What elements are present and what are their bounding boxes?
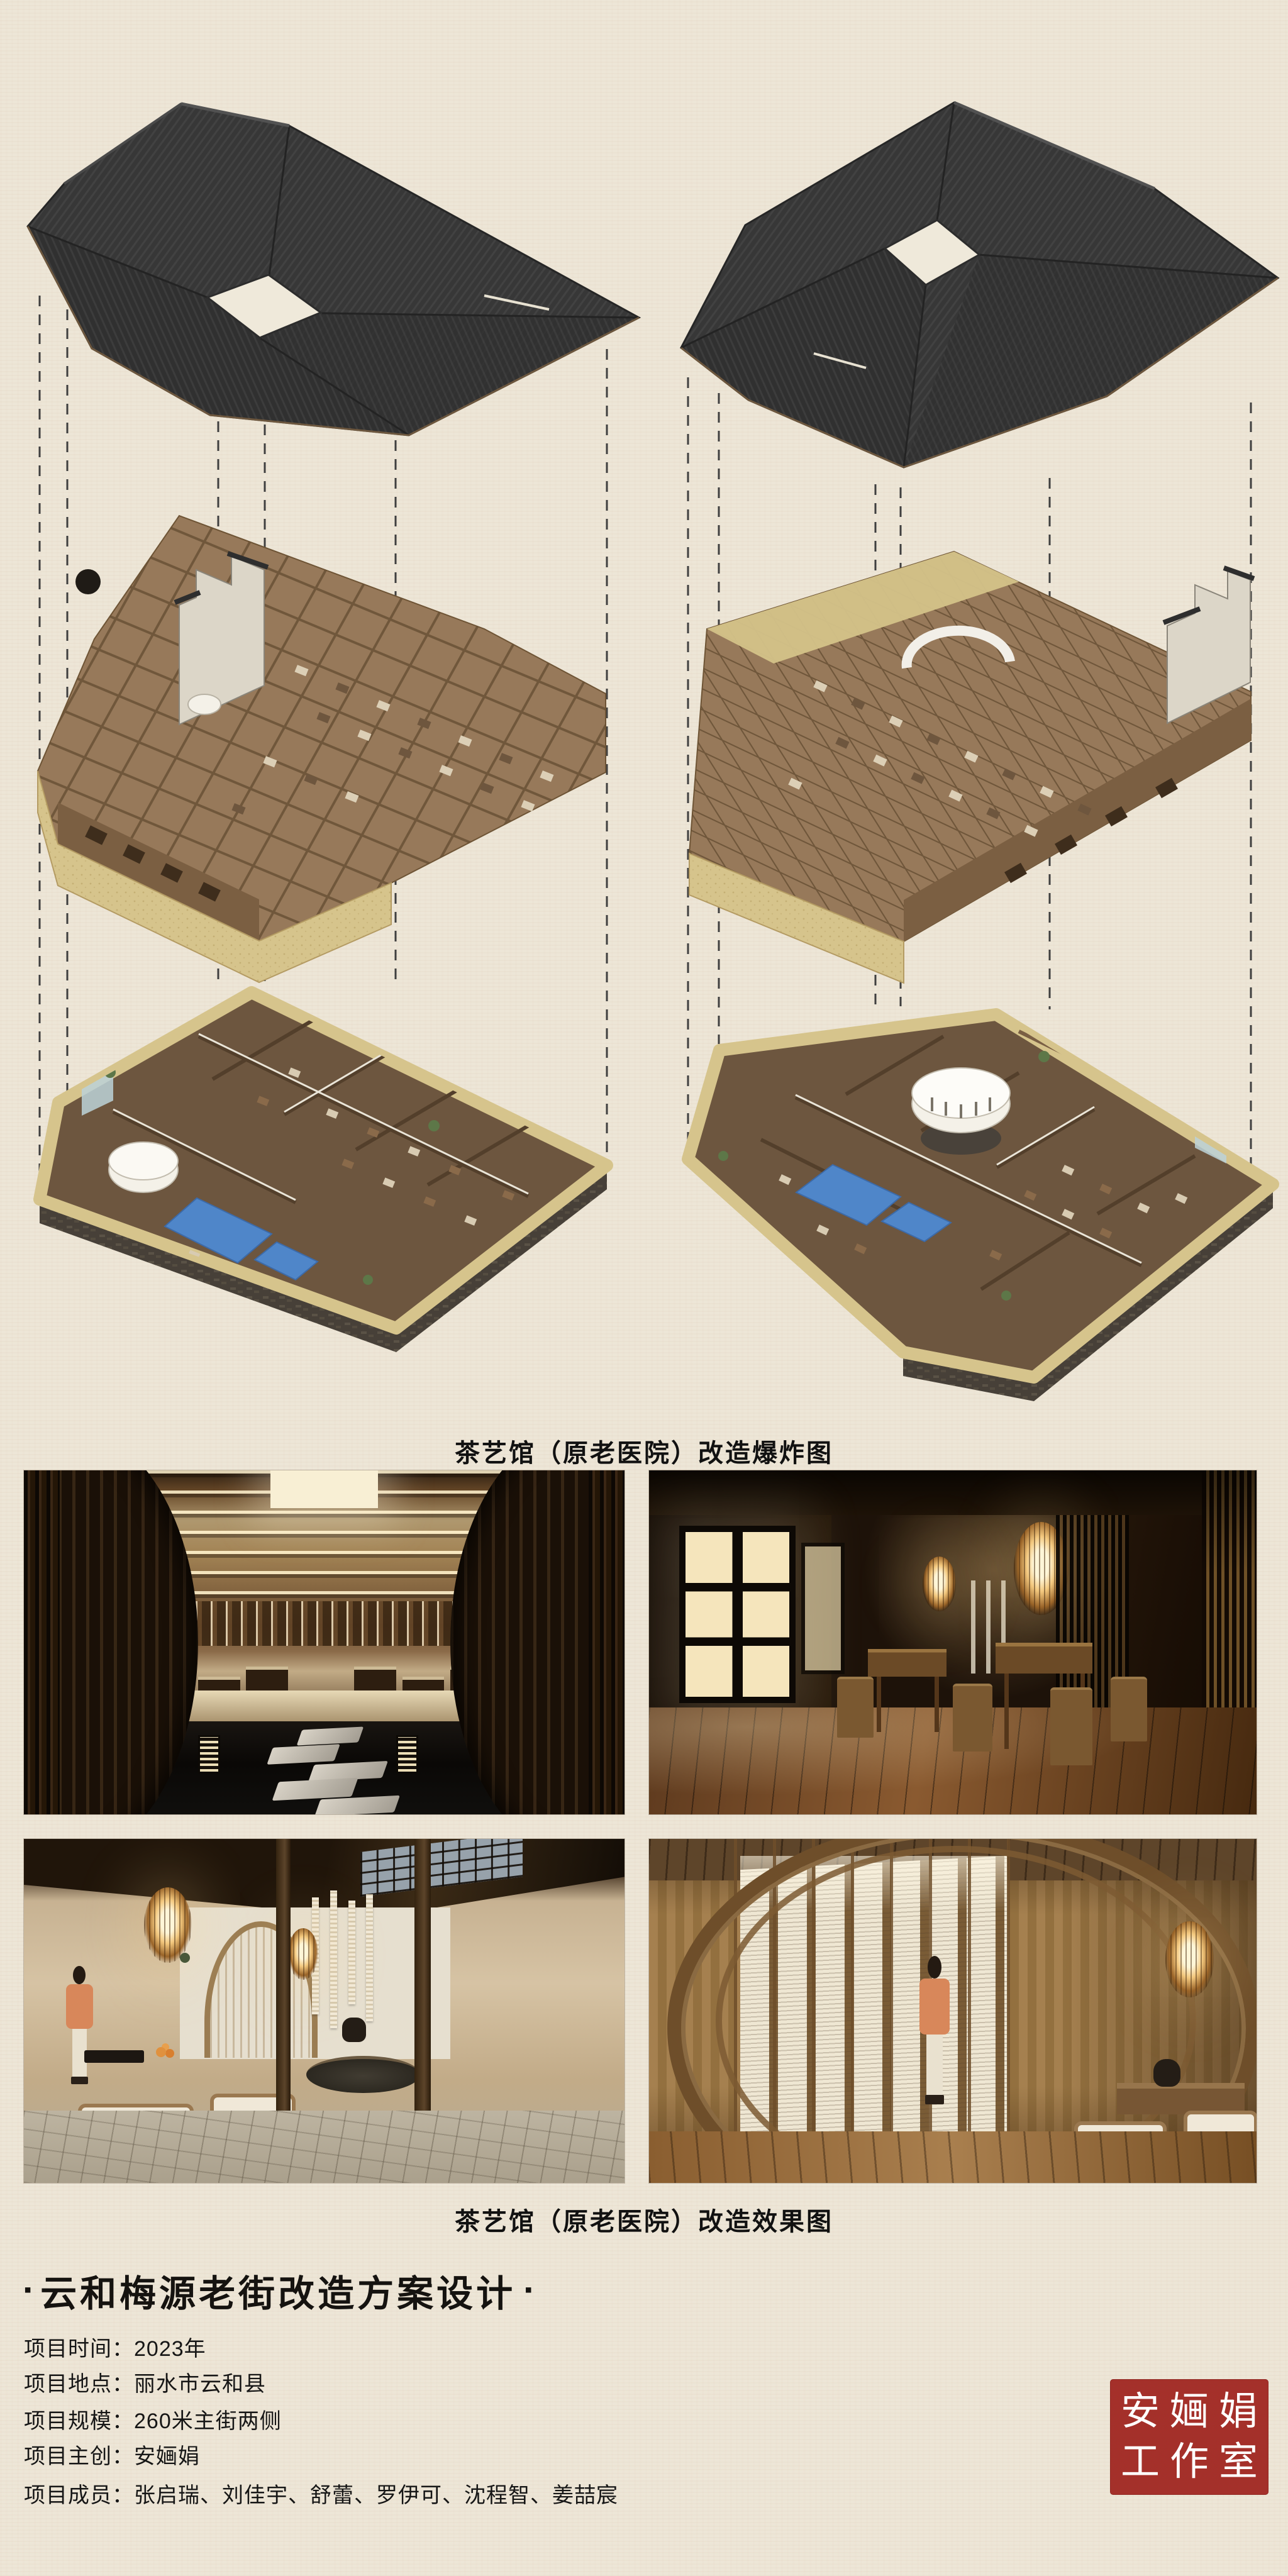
tall-table [996, 1643, 1093, 1674]
wood-slats [24, 1470, 60, 1814]
fruit-bowl [156, 2047, 166, 2057]
lit-window [679, 1526, 795, 1704]
hanging-lantern [923, 1557, 956, 1612]
hanging-scroll [330, 1890, 337, 2028]
info-project-members: 项目成员：张启瑞、刘佳宇、舒蕾、罗伊可、沈程智、姜喆宸 [24, 2478, 618, 2509]
stool [953, 1684, 992, 1752]
tea-tray [84, 2050, 145, 2062]
sloped-ceiling [24, 1839, 625, 1918]
presentation-board: 茶艺馆（原老医院）改造爆炸图 [0, 0, 1288, 2576]
wood-slats [589, 1470, 625, 1814]
tea-table [36, 2059, 240, 2090]
hanging-lantern [288, 1928, 318, 1980]
kettle [342, 2018, 366, 2041]
studio-seal: 安婳娟 工作室 [1110, 2379, 1269, 2495]
info-project-location: 项目地点：丽水市云和县 [24, 2367, 266, 2397]
plant [180, 1953, 190, 1963]
render-photo-tea-hall [24, 1470, 625, 1814]
stone-lantern [396, 1735, 418, 1774]
tall-table [868, 1649, 947, 1677]
info-project-lead: 项目主创：安婳娟 [24, 2439, 200, 2470]
hanging-lantern [144, 1887, 192, 1963]
standing-person [919, 1956, 950, 2107]
info-project-time: 项目时间：2023年 [24, 2331, 206, 2362]
right-structure-layer [660, 516, 1288, 994]
skylight [270, 1470, 379, 1508]
right-plan-layer [688, 1014, 1273, 1401]
hanging-scroll [348, 1901, 355, 2004]
stool [837, 1677, 874, 1738]
kettle [1153, 2059, 1180, 2087]
paver-floor [24, 2111, 625, 2183]
title-bullet-right: ▪ [525, 2272, 532, 2309]
left-roof-layer [28, 104, 639, 435]
wood-floor [649, 2131, 1257, 2183]
exploded-diagrams [0, 0, 1288, 1465]
side-table [318, 2031, 408, 2097]
render-photo-window-tables [649, 1470, 1257, 1814]
render-photo-tea-room [24, 1839, 625, 2183]
renders-caption: 茶艺馆（原老医院）改造效果图 [0, 2201, 1288, 2238]
hanging-scroll [366, 1894, 373, 2021]
render-photo-moon-arch [649, 1839, 1257, 2183]
stool [1111, 1677, 1147, 1741]
exploded-caption: 茶艺馆（原老医院）改造爆炸图 [0, 1433, 1288, 1469]
seal-row-1: 安婳娟 [1111, 2387, 1268, 2437]
stool [1050, 1687, 1093, 1765]
seal-row-2: 工作室 [1111, 2437, 1268, 2487]
small-window [801, 1543, 845, 1674]
project-title-row: ▪ 云和梅源老街改造方案设计 ▪ [24, 2264, 532, 2317]
page-title: 云和梅源老街改造方案设计 [40, 2264, 516, 2317]
info-project-scale: 项目规模：260米主街两侧 [24, 2404, 282, 2434]
hanging-lantern [1165, 1921, 1214, 1997]
title-bullet-left: ▪ [24, 2272, 31, 2309]
left-structure-layer [0, 440, 692, 1006]
left-plan-layer [40, 992, 607, 1352]
dark-ceiling [649, 1470, 1257, 1515]
tea-table [1117, 2083, 1245, 2114]
right-roof-layer [681, 103, 1278, 467]
round-counter [109, 1142, 178, 1180]
stone-lantern [198, 1735, 220, 1774]
